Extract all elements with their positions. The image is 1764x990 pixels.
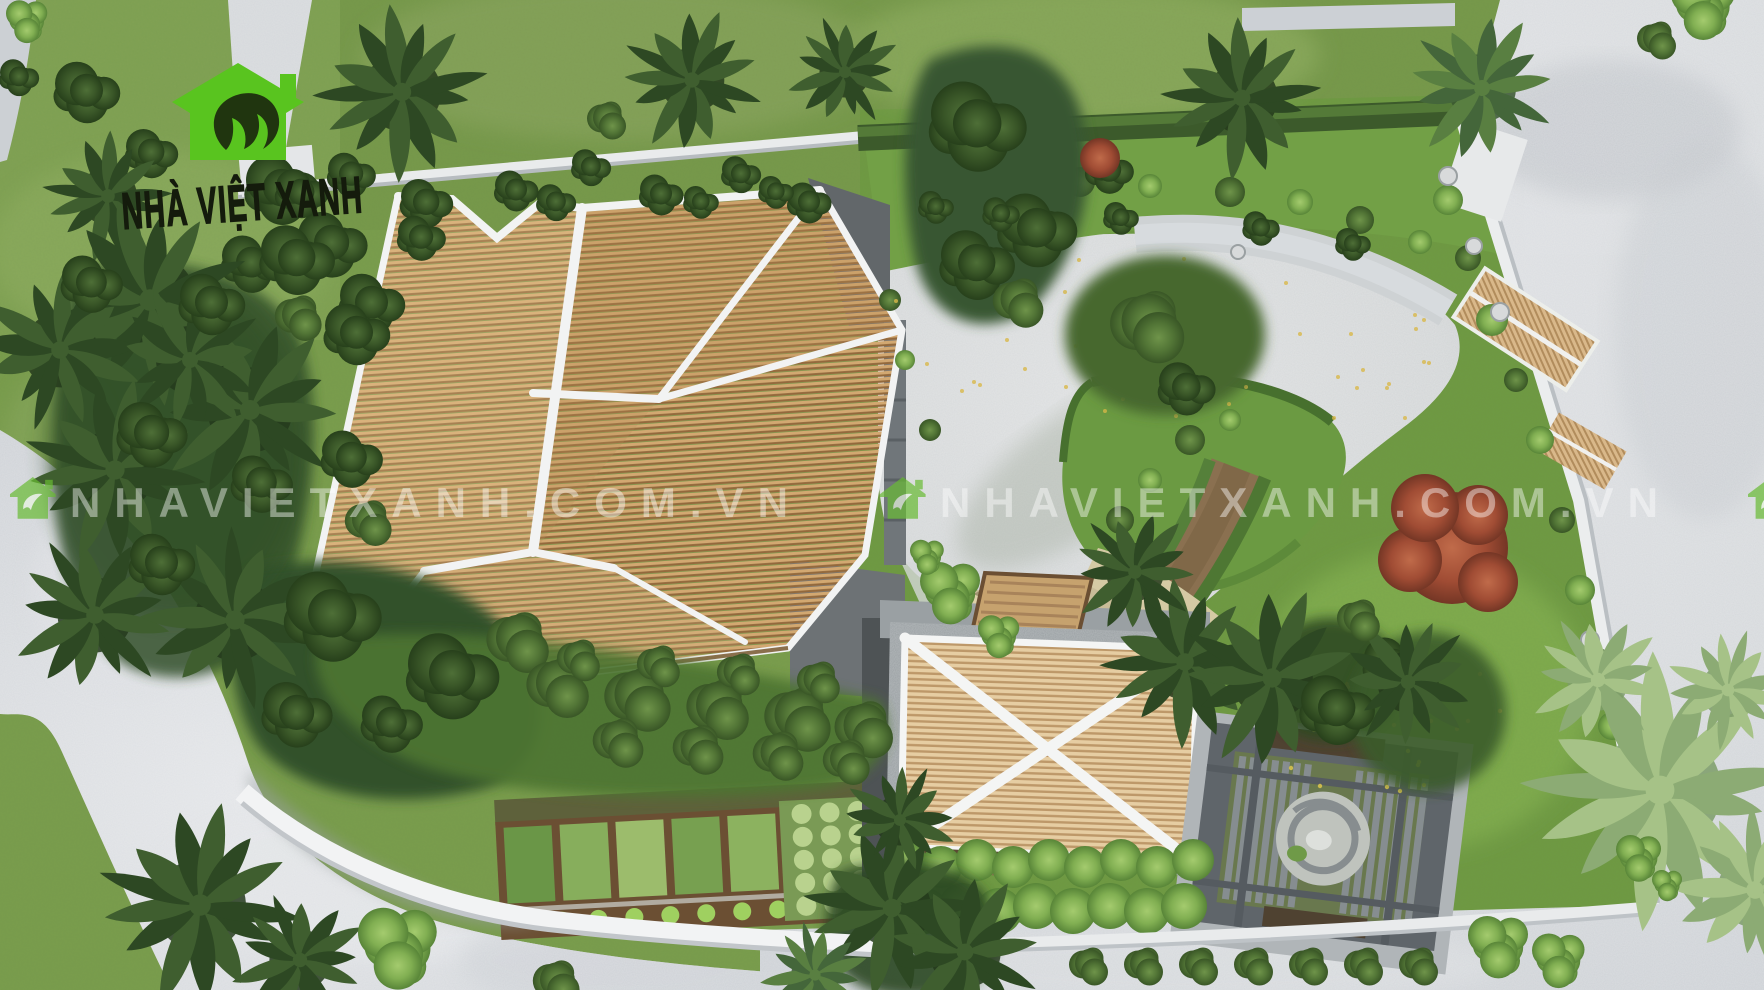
svg-text:NHAVIETXANH.COM.VN: NHAVIETXANH.COM.VN (70, 479, 802, 526)
svg-text:NHAVIETXANH.COM.VN: NHAVIETXANH.COM.VN (940, 479, 1672, 526)
